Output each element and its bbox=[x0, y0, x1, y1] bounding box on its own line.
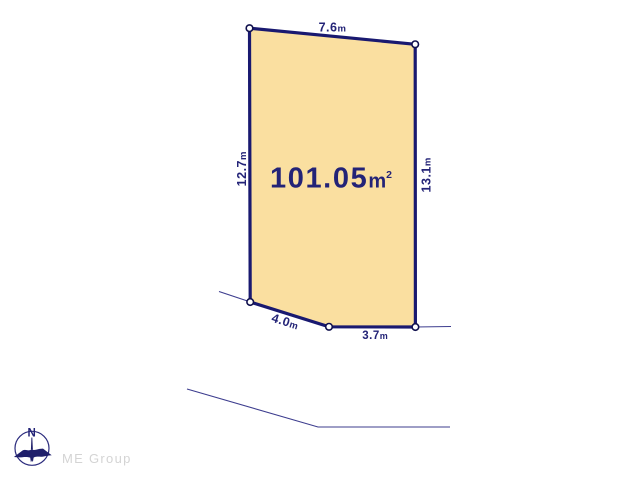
svg-text:13.1m: 13.1m bbox=[419, 157, 433, 192]
svg-text:3.7m: 3.7m bbox=[362, 330, 388, 342]
svg-text:7.6m: 7.6m bbox=[319, 21, 347, 35]
svg-text:ME Group: ME Group bbox=[62, 451, 132, 466]
svg-text:12.7m: 12.7m bbox=[235, 151, 249, 186]
